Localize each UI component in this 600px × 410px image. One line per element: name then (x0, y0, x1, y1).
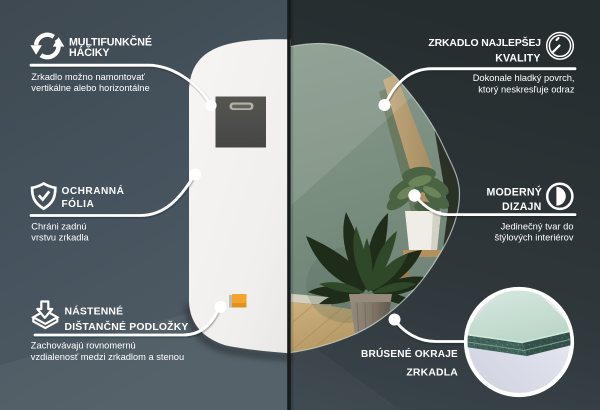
svg-text:OCHRANNÁ: OCHRANNÁ (62, 184, 125, 197)
svg-text:ktorý neskresľuje odraz: ktorý neskresľuje odraz (478, 84, 575, 94)
svg-text:Jedinečný tvar do: Jedinečný tvar do (501, 222, 574, 232)
svg-text:DIZAJN: DIZAJN (502, 201, 541, 213)
svg-text:štýlových interiérov: štýlových interiérov (494, 233, 573, 243)
svg-text:FÓLIA: FÓLIA (62, 197, 95, 210)
svg-text:Zachovávajú rovnomernú: Zachovávajú rovnomernú (31, 341, 136, 351)
svg-text:vertikálne alebo horizontálne: vertikálne alebo horizontálne (31, 83, 149, 93)
svg-text:BRÚSENÉ OKRAJE: BRÚSENÉ OKRAJE (361, 347, 458, 360)
svg-text:ZRKADLA: ZRKADLA (406, 368, 458, 379)
svg-text:HÁČIKY: HÁČIKY (69, 46, 109, 59)
svg-text:ZRKADLO NAJLEPŠEJ: ZRKADLO NAJLEPŠEJ (428, 36, 541, 49)
svg-text:DIŠTANČNÉ PODLOŽKY: DIŠTANČNÉ PODLOŽKY (65, 320, 189, 333)
svg-text:vzdialenosť medzi zrkadlom a s: vzdialenosť medzi zrkadlom a stenou (31, 352, 184, 362)
svg-text:Zrkadlo možno namontovať: Zrkadlo možno namontovať (31, 72, 145, 82)
svg-text:MODERNÝ: MODERNÝ (486, 186, 542, 199)
svg-text:Chráni zadnú: Chráni zadnú (31, 222, 86, 232)
svg-text:Dokonale hladký povrch,: Dokonale hladký povrch, (473, 73, 575, 83)
svg-text:vrstvu zrkadla: vrstvu zrkadla (31, 233, 89, 243)
svg-text:NÁSTENNÉ: NÁSTENNÉ (65, 305, 124, 318)
svg-text:KVALITY: KVALITY (495, 53, 540, 65)
